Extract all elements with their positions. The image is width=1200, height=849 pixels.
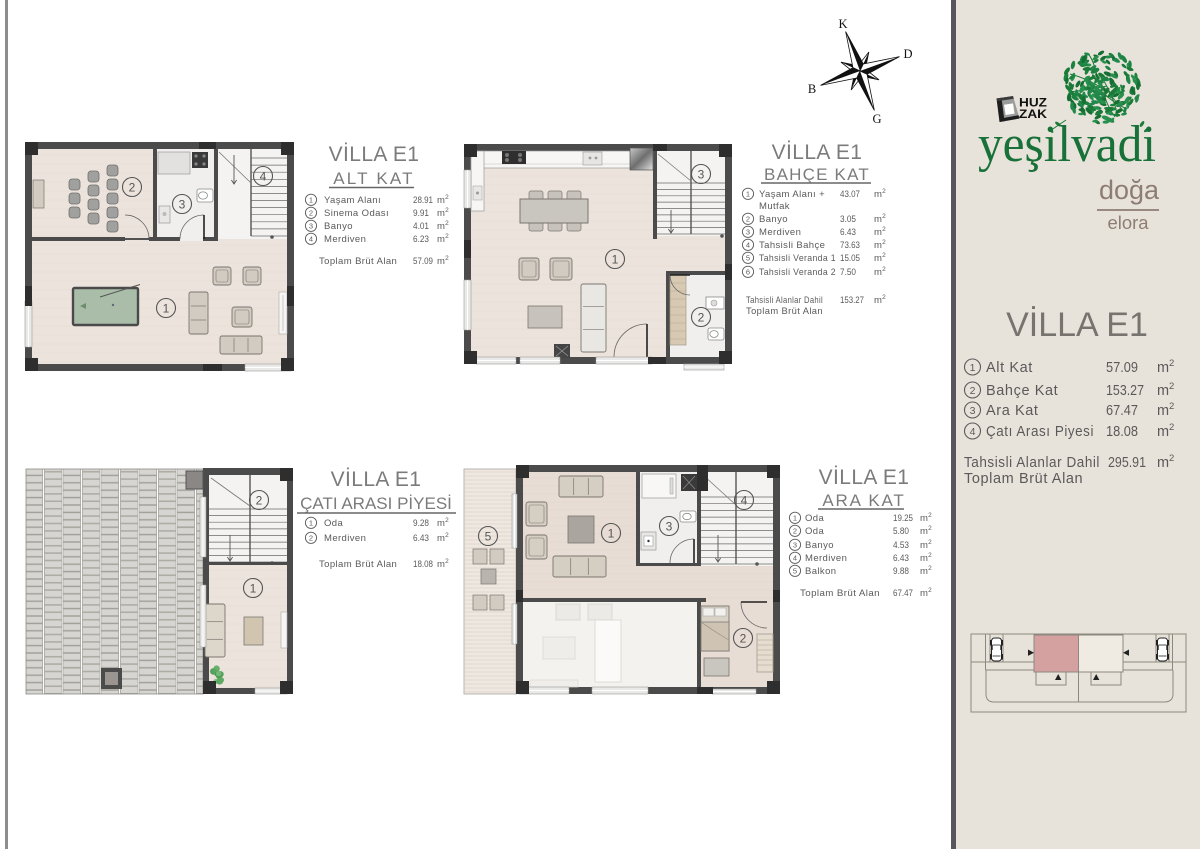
- svg-text:HUZ: HUZ: [1019, 98, 1047, 110]
- svg-text:Alt Kat: Alt Kat: [986, 360, 1033, 376]
- svg-text:1: 1: [970, 362, 976, 374]
- svg-text:m: m: [1157, 360, 1169, 376]
- svg-text:2: 2: [1169, 453, 1174, 464]
- svg-text:m: m: [1157, 383, 1169, 399]
- svg-text:doğa: doğa: [1099, 175, 1160, 205]
- svg-text:2: 2: [1169, 358, 1174, 369]
- svg-text:m: m: [1157, 424, 1169, 440]
- svg-text:295.91: 295.91: [1108, 455, 1146, 471]
- svg-text:153.27: 153.27: [1106, 383, 1144, 399]
- svg-text:57.09: 57.09: [1106, 360, 1138, 376]
- svg-text:2: 2: [1169, 381, 1174, 392]
- svg-text:m: m: [1157, 403, 1169, 419]
- svg-text:4: 4: [970, 426, 976, 438]
- svg-text:VİLLA E1: VİLLA E1: [1006, 306, 1148, 344]
- svg-text:Bahçe Kat: Bahçe Kat: [986, 383, 1058, 399]
- svg-text:Çatı Arası Piyesi: Çatı Arası Piyesi: [986, 424, 1094, 440]
- svg-text:Ara Kat: Ara Kat: [986, 403, 1039, 419]
- svg-text:3: 3: [970, 405, 976, 417]
- svg-text:67.47: 67.47: [1106, 403, 1138, 419]
- svg-text:yeşilvadi: yeşilvadi: [978, 116, 1156, 173]
- svg-text:Tahsisli Alanlar Dahil: Tahsisli Alanlar Dahil: [964, 455, 1100, 471]
- svg-text:Toplam Brüt Alan: Toplam Brüt Alan: [964, 471, 1083, 487]
- svg-text:elora: elora: [1108, 213, 1150, 233]
- svg-text:2: 2: [970, 385, 976, 397]
- svg-text:2: 2: [1169, 401, 1174, 412]
- svg-text:2: 2: [1169, 422, 1174, 433]
- svg-text:18.08: 18.08: [1106, 424, 1138, 440]
- svg-text:m: m: [1157, 455, 1169, 471]
